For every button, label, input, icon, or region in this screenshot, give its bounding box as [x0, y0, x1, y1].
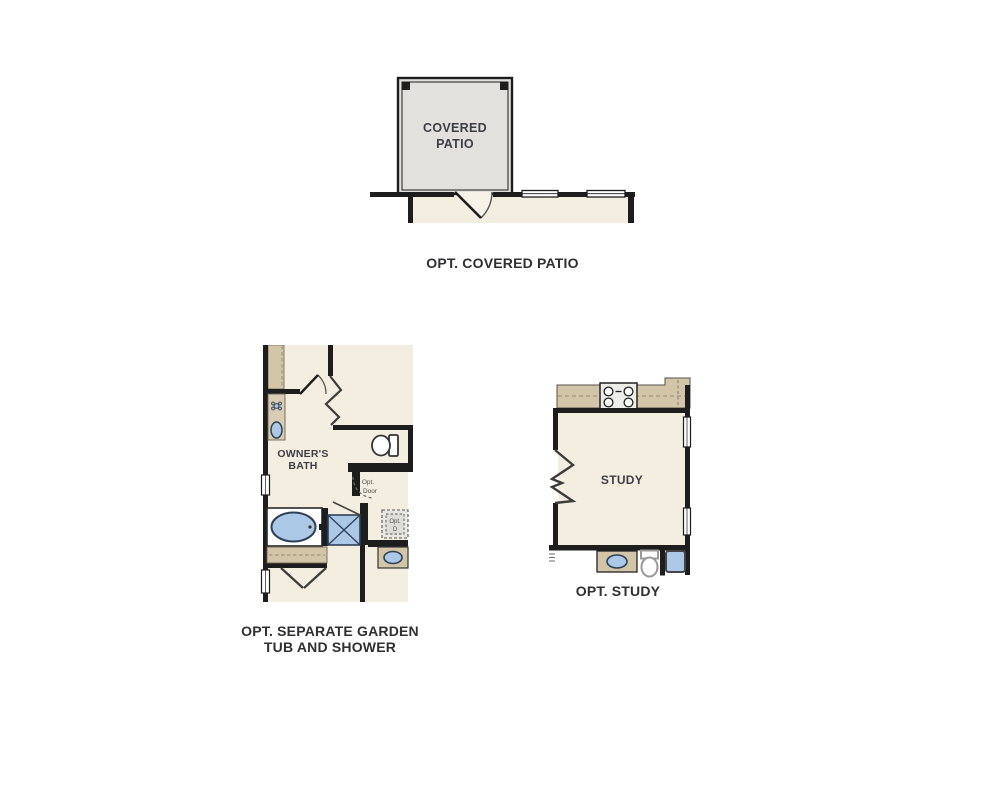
toilet-icon: [641, 551, 658, 577]
sink-icon: [607, 555, 627, 568]
room-label-line: COVERED: [398, 120, 512, 136]
room-label-line: OWNER'S: [247, 448, 359, 460]
wall-segment: [352, 472, 360, 496]
opt-door-label: Opt.: [362, 479, 374, 486]
covered-patio-caption: OPT. COVERED PATIO: [365, 255, 640, 271]
wall-cut-marks: [549, 554, 555, 561]
opt-door-label: Door: [363, 488, 378, 495]
opt-d-label: D: [393, 527, 398, 533]
covered-patio-room-label: COVERED PATIO: [398, 120, 512, 152]
caption-line: OPT. SEPARATE GARDEN: [230, 623, 430, 639]
wall-segment: [370, 192, 454, 197]
owners-bath-room-label: OWNER'S BATH: [247, 448, 359, 472]
wall-segment: [553, 408, 690, 413]
wall-segment: [322, 508, 328, 546]
sink-counter: [597, 551, 637, 572]
wall-segment: [408, 425, 413, 468]
wall-segment: [360, 503, 368, 545]
wall-segment: [660, 551, 665, 576]
garden-tub-icon: [267, 508, 322, 546]
window-icon: [522, 191, 558, 198]
room-label-line: STUDY: [542, 473, 702, 487]
cooktop-icon: [600, 383, 637, 410]
wall-segment: [549, 545, 690, 551]
covered-patio-floorplan: [365, 70, 640, 235]
wall-segment: [333, 425, 413, 430]
study-floorplan: [545, 373, 705, 603]
window-icon: [262, 570, 270, 593]
window-icon: [684, 417, 691, 447]
shower-icon: [666, 551, 685, 572]
study-caption: OPT. STUDY: [538, 583, 698, 599]
house-floor: [413, 196, 628, 223]
window-icon: [587, 191, 625, 198]
sink-icon: [271, 422, 282, 438]
room-label-line: PATIO: [398, 136, 512, 152]
secondary-sink-counter: [378, 547, 408, 568]
wall-segment: [368, 540, 408, 547]
wall-segment: [328, 345, 333, 376]
garden-tub-caption: OPT. SEPARATE GARDEN TUB AND SHOWER: [230, 623, 430, 655]
corner-post-icon: [500, 83, 508, 91]
lower-counter: [267, 547, 327, 563]
wall-segment: [408, 197, 413, 223]
vanity-counter: [268, 394, 285, 440]
window-icon: [262, 475, 270, 495]
room-label-line: BATH: [247, 460, 359, 472]
wall-segment: [553, 503, 558, 545]
shower-valve-icon: [319, 524, 322, 530]
wall-segment: [360, 545, 365, 602]
wall-segment: [685, 385, 690, 417]
floorplan-options-page: COVERED PATIO OPT. COVERED PATIO: [0, 0, 1000, 810]
wall-segment: [263, 389, 300, 394]
opt-d-annotation: Opt. D: [382, 510, 408, 538]
corner-post-icon: [403, 83, 411, 91]
caption-line: TUB AND SHOWER: [230, 639, 430, 655]
toilet-icon: [372, 435, 398, 456]
cabinet-counter: [268, 345, 284, 389]
wall-segment: [628, 197, 634, 223]
sink-icon: [384, 552, 402, 564]
wall-segment: [553, 413, 558, 450]
study-room-label: STUDY: [542, 473, 702, 487]
opt-d-label: Opt.: [389, 519, 401, 525]
window-icon: [684, 508, 691, 535]
garden-tub-shower-floorplan: Opt. Door Opt. D: [255, 345, 415, 605]
wall-segment: [263, 593, 268, 602]
wall-segment: [263, 563, 327, 568]
